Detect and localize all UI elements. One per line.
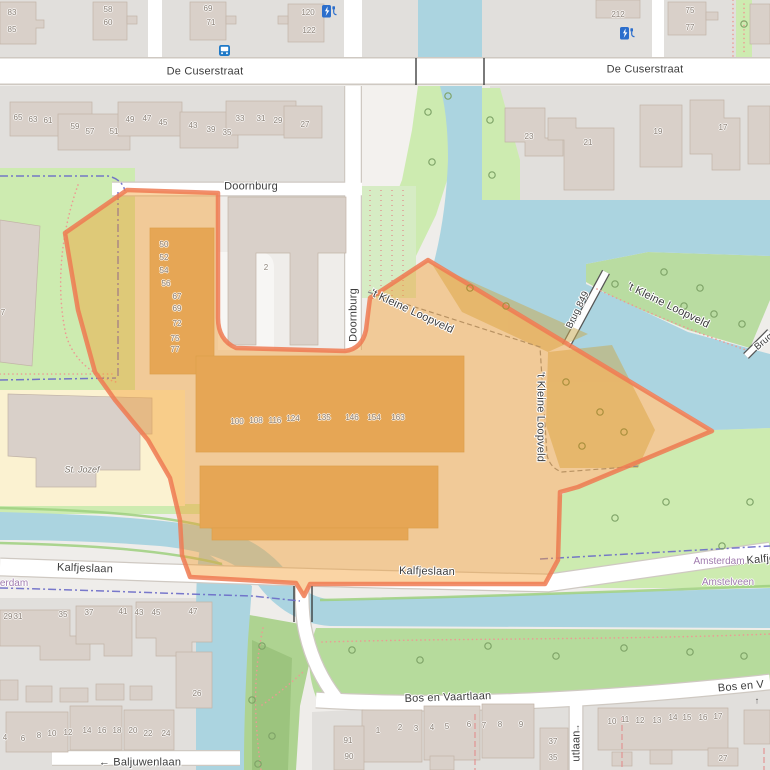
map-viewport[interactable]: De CuserstraatDe CuserstraatDoornburgDoo… <box>0 0 770 770</box>
map-canvas <box>0 0 770 770</box>
